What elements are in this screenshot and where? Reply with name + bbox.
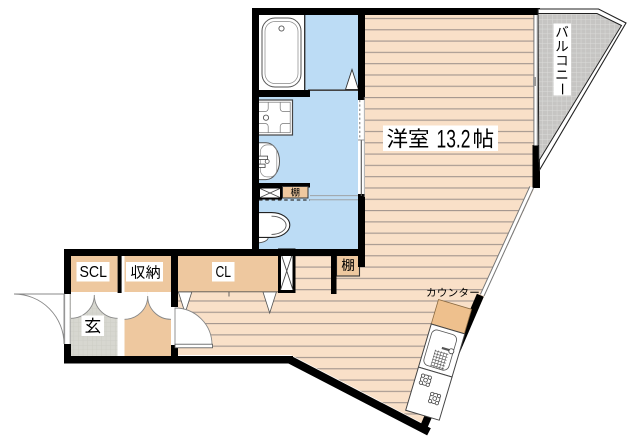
svg-text:13.2: 13.2 <box>437 126 471 154</box>
svg-text:CL: CL <box>216 264 232 281</box>
svg-text:SCL: SCL <box>80 264 108 281</box>
